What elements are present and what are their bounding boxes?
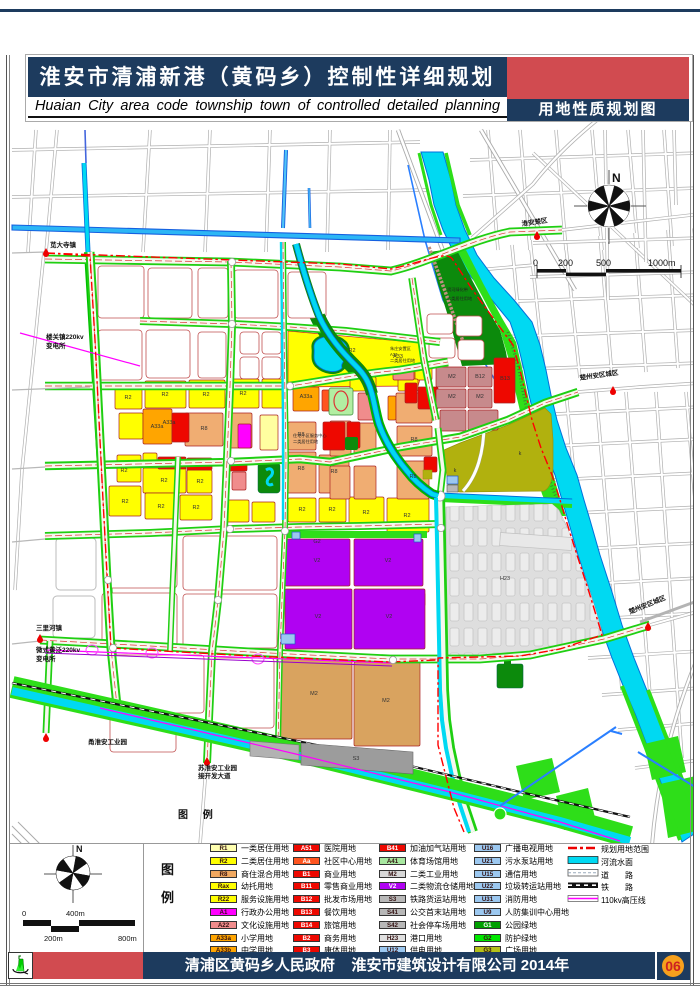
svg-text:M2: M2 xyxy=(476,394,484,400)
svg-text:R2: R2 xyxy=(161,392,168,398)
svg-text:400m: 400m xyxy=(66,909,85,918)
svg-text:R2: R2 xyxy=(124,395,131,401)
svg-text:R8: R8 xyxy=(409,474,416,480)
svg-text:800m: 800m xyxy=(118,934,137,943)
svg-text:M2: M2 xyxy=(448,374,456,380)
svg-text:变电所: 变电所 xyxy=(46,341,66,350)
svg-text:R8: R8 xyxy=(410,437,417,443)
svg-text:M2: M2 xyxy=(310,691,318,697)
svg-text:图 例: 图 例 xyxy=(178,808,219,821)
svg-text:A33a: A33a xyxy=(300,394,314,400)
svg-text:R8: R8 xyxy=(297,466,304,472)
svg-text:200: 200 xyxy=(558,258,573,268)
svg-text:接开发大道: 接开发大道 xyxy=(198,771,231,780)
svg-text:0: 0 xyxy=(22,909,26,918)
svg-text:200m: 200m xyxy=(44,934,63,943)
svg-text:S3: S3 xyxy=(353,756,360,762)
svg-text:R2: R2 xyxy=(157,504,164,510)
svg-text:R2: R2 xyxy=(160,478,167,484)
svg-text:B12: B12 xyxy=(475,374,485,380)
svg-text:k: k xyxy=(454,468,457,474)
svg-text:R2: R2 xyxy=(403,513,410,519)
svg-text:R2: R2 xyxy=(121,499,128,505)
svg-text:V2: V2 xyxy=(385,558,392,564)
svg-text:楼关镇220kv: 楼关镇220kv xyxy=(46,332,84,341)
svg-text:R2: R2 xyxy=(120,468,127,474)
svg-text:V2: V2 xyxy=(315,614,322,620)
svg-text:V2: V2 xyxy=(314,558,321,564)
svg-text:三里河镇: 三里河镇 xyxy=(36,623,63,632)
svg-text:V2: V2 xyxy=(386,614,393,620)
svg-text:M2: M2 xyxy=(382,698,390,704)
svg-text:楚州安区城区: 楚州安区城区 xyxy=(578,368,619,383)
svg-text:R2: R2 xyxy=(196,479,203,485)
svg-text:R2: R2 xyxy=(362,510,369,516)
svg-text:R2: R2 xyxy=(192,505,199,511)
svg-text:苋大寺镇: 苋大寺镇 xyxy=(50,240,77,249)
svg-text:R2: R2 xyxy=(328,507,335,513)
svg-text:H23: H23 xyxy=(500,576,510,582)
svg-text:滨河绿化带: 滨河绿化带 xyxy=(447,286,468,293)
svg-text:A33a: A33a xyxy=(163,420,177,426)
svg-text:R8: R8 xyxy=(297,432,304,438)
svg-text:G2: G2 xyxy=(313,539,320,545)
svg-text:06: 06 xyxy=(665,958,681,974)
svg-text:k: k xyxy=(519,451,522,457)
svg-text:A33: A33 xyxy=(393,354,403,360)
svg-text:R2: R2 xyxy=(298,507,305,513)
svg-text:B13: B13 xyxy=(500,376,510,382)
svg-text:N: N xyxy=(612,171,621,185)
svg-text:R8: R8 xyxy=(200,426,207,432)
svg-text:R2: R2 xyxy=(239,391,246,397)
svg-text:R2: R2 xyxy=(348,348,355,354)
svg-text:二类居住用地: 二类居住用地 xyxy=(293,438,319,445)
svg-text:二类居住用地: 二类居住用地 xyxy=(447,295,473,302)
svg-text:微式黄泛220kv: 微式黄泛220kv xyxy=(35,645,80,654)
svg-text:N: N xyxy=(76,844,83,854)
svg-text:苏淮安工业园: 苏淮安工业园 xyxy=(198,763,238,772)
svg-text:朱庄安置区: 朱庄安置区 xyxy=(390,345,411,352)
svg-text:R2: R2 xyxy=(202,392,209,398)
svg-text:M2: M2 xyxy=(448,394,456,400)
svg-text:1000m: 1000m xyxy=(648,258,676,268)
svg-text:变电所: 变电所 xyxy=(36,654,56,663)
svg-text:R8: R8 xyxy=(330,469,337,475)
svg-text:500: 500 xyxy=(596,258,611,268)
svg-text:甬淮安工业园: 甬淮安工业园 xyxy=(88,737,128,746)
